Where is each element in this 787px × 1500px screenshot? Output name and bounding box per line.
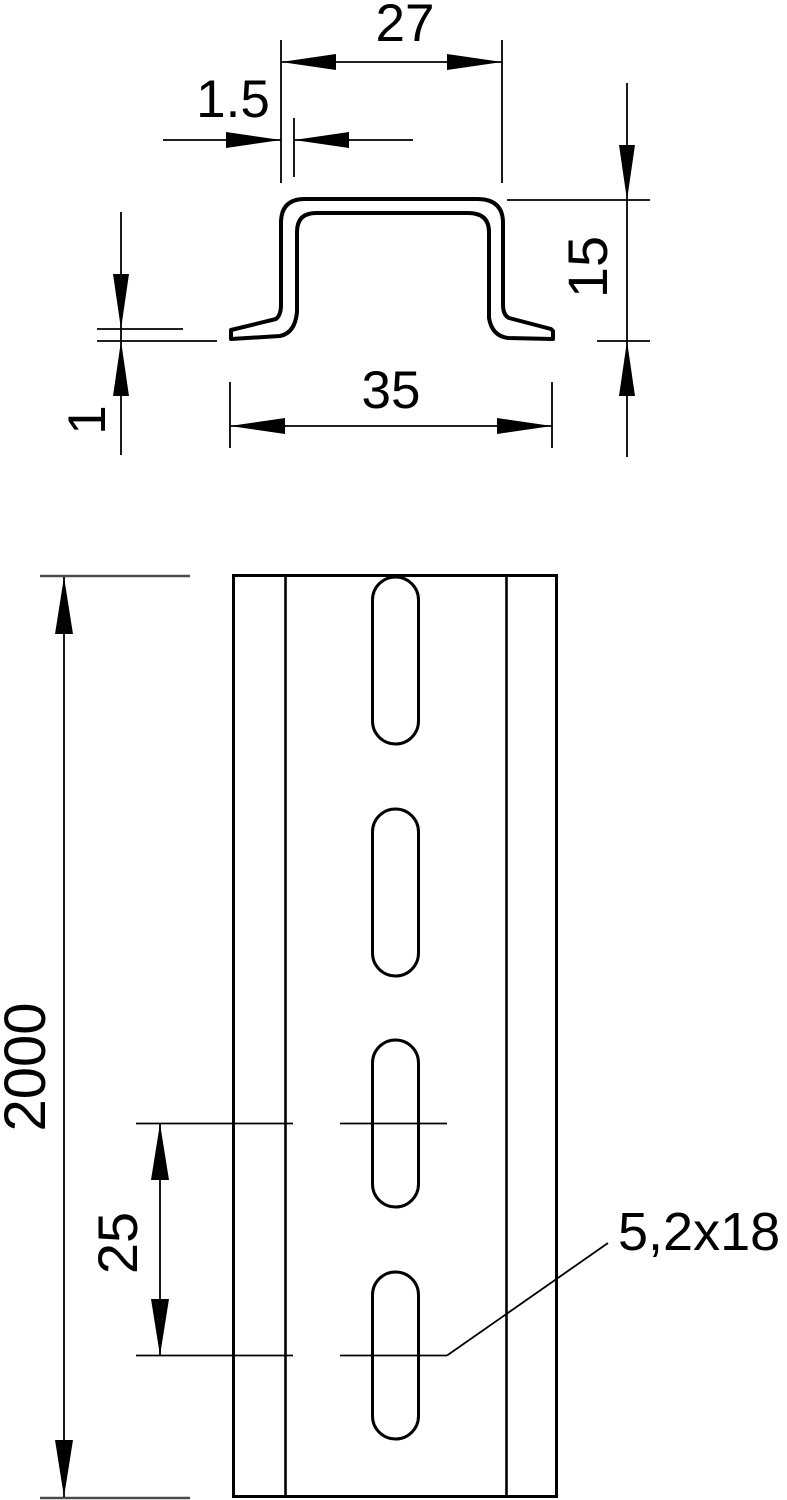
dim-35-label: 35 <box>362 361 421 420</box>
dim-bottom-width: 35 <box>230 361 552 448</box>
dim-1-arrow-up <box>113 341 129 396</box>
dim-flange-thickness: 1 <box>58 212 217 455</box>
cross-section-view: 27 1.5 15 35 <box>58 0 650 457</box>
dim-25-arrow-top <box>151 1124 169 1181</box>
dim-25-label: 25 <box>86 1212 149 1274</box>
dim-35-arrow-left <box>230 418 285 434</box>
dim-1-label: 1 <box>58 405 117 434</box>
dim-25-arrow-bottom <box>151 1299 169 1356</box>
dim-35-arrow-right <box>497 418 552 434</box>
din-rail-technical-drawing: 27 1.5 15 35 <box>0 0 787 1500</box>
dim-1-5-arrow-left <box>226 132 281 148</box>
dim-15-label: 15 <box>556 236 619 298</box>
dim-15-arrow-top <box>619 145 635 200</box>
dim-27-label: 27 <box>376 0 435 53</box>
dim-material-thickness: 1.5 <box>163 70 413 177</box>
slot-2 <box>373 809 419 976</box>
dim-2000-arrow-top <box>55 577 73 634</box>
dim-2000-arrow-bottom <box>55 1440 73 1497</box>
slot-size-label: 5,2x18 <box>618 1202 780 1262</box>
dim-1-5-label: 1.5 <box>196 70 270 129</box>
dim-profile-height: 15 <box>507 83 650 457</box>
dim-top-width: 27 <box>281 0 502 183</box>
slot-1 <box>373 577 419 744</box>
hat-profile-outline <box>231 199 553 339</box>
dim-2000-label: 2000 <box>0 1002 58 1131</box>
dim-rail-length: 2000 <box>0 576 190 1498</box>
dim-1-arrow-down <box>113 274 129 329</box>
front-view: 2000 25 5,2x18 <box>0 576 780 1499</box>
dim-27-arrow-left <box>281 54 336 70</box>
dim-27-arrow-right <box>447 54 502 70</box>
dim-1-5-arrow-right <box>294 132 349 148</box>
dim-15-arrow-bottom <box>619 341 635 396</box>
